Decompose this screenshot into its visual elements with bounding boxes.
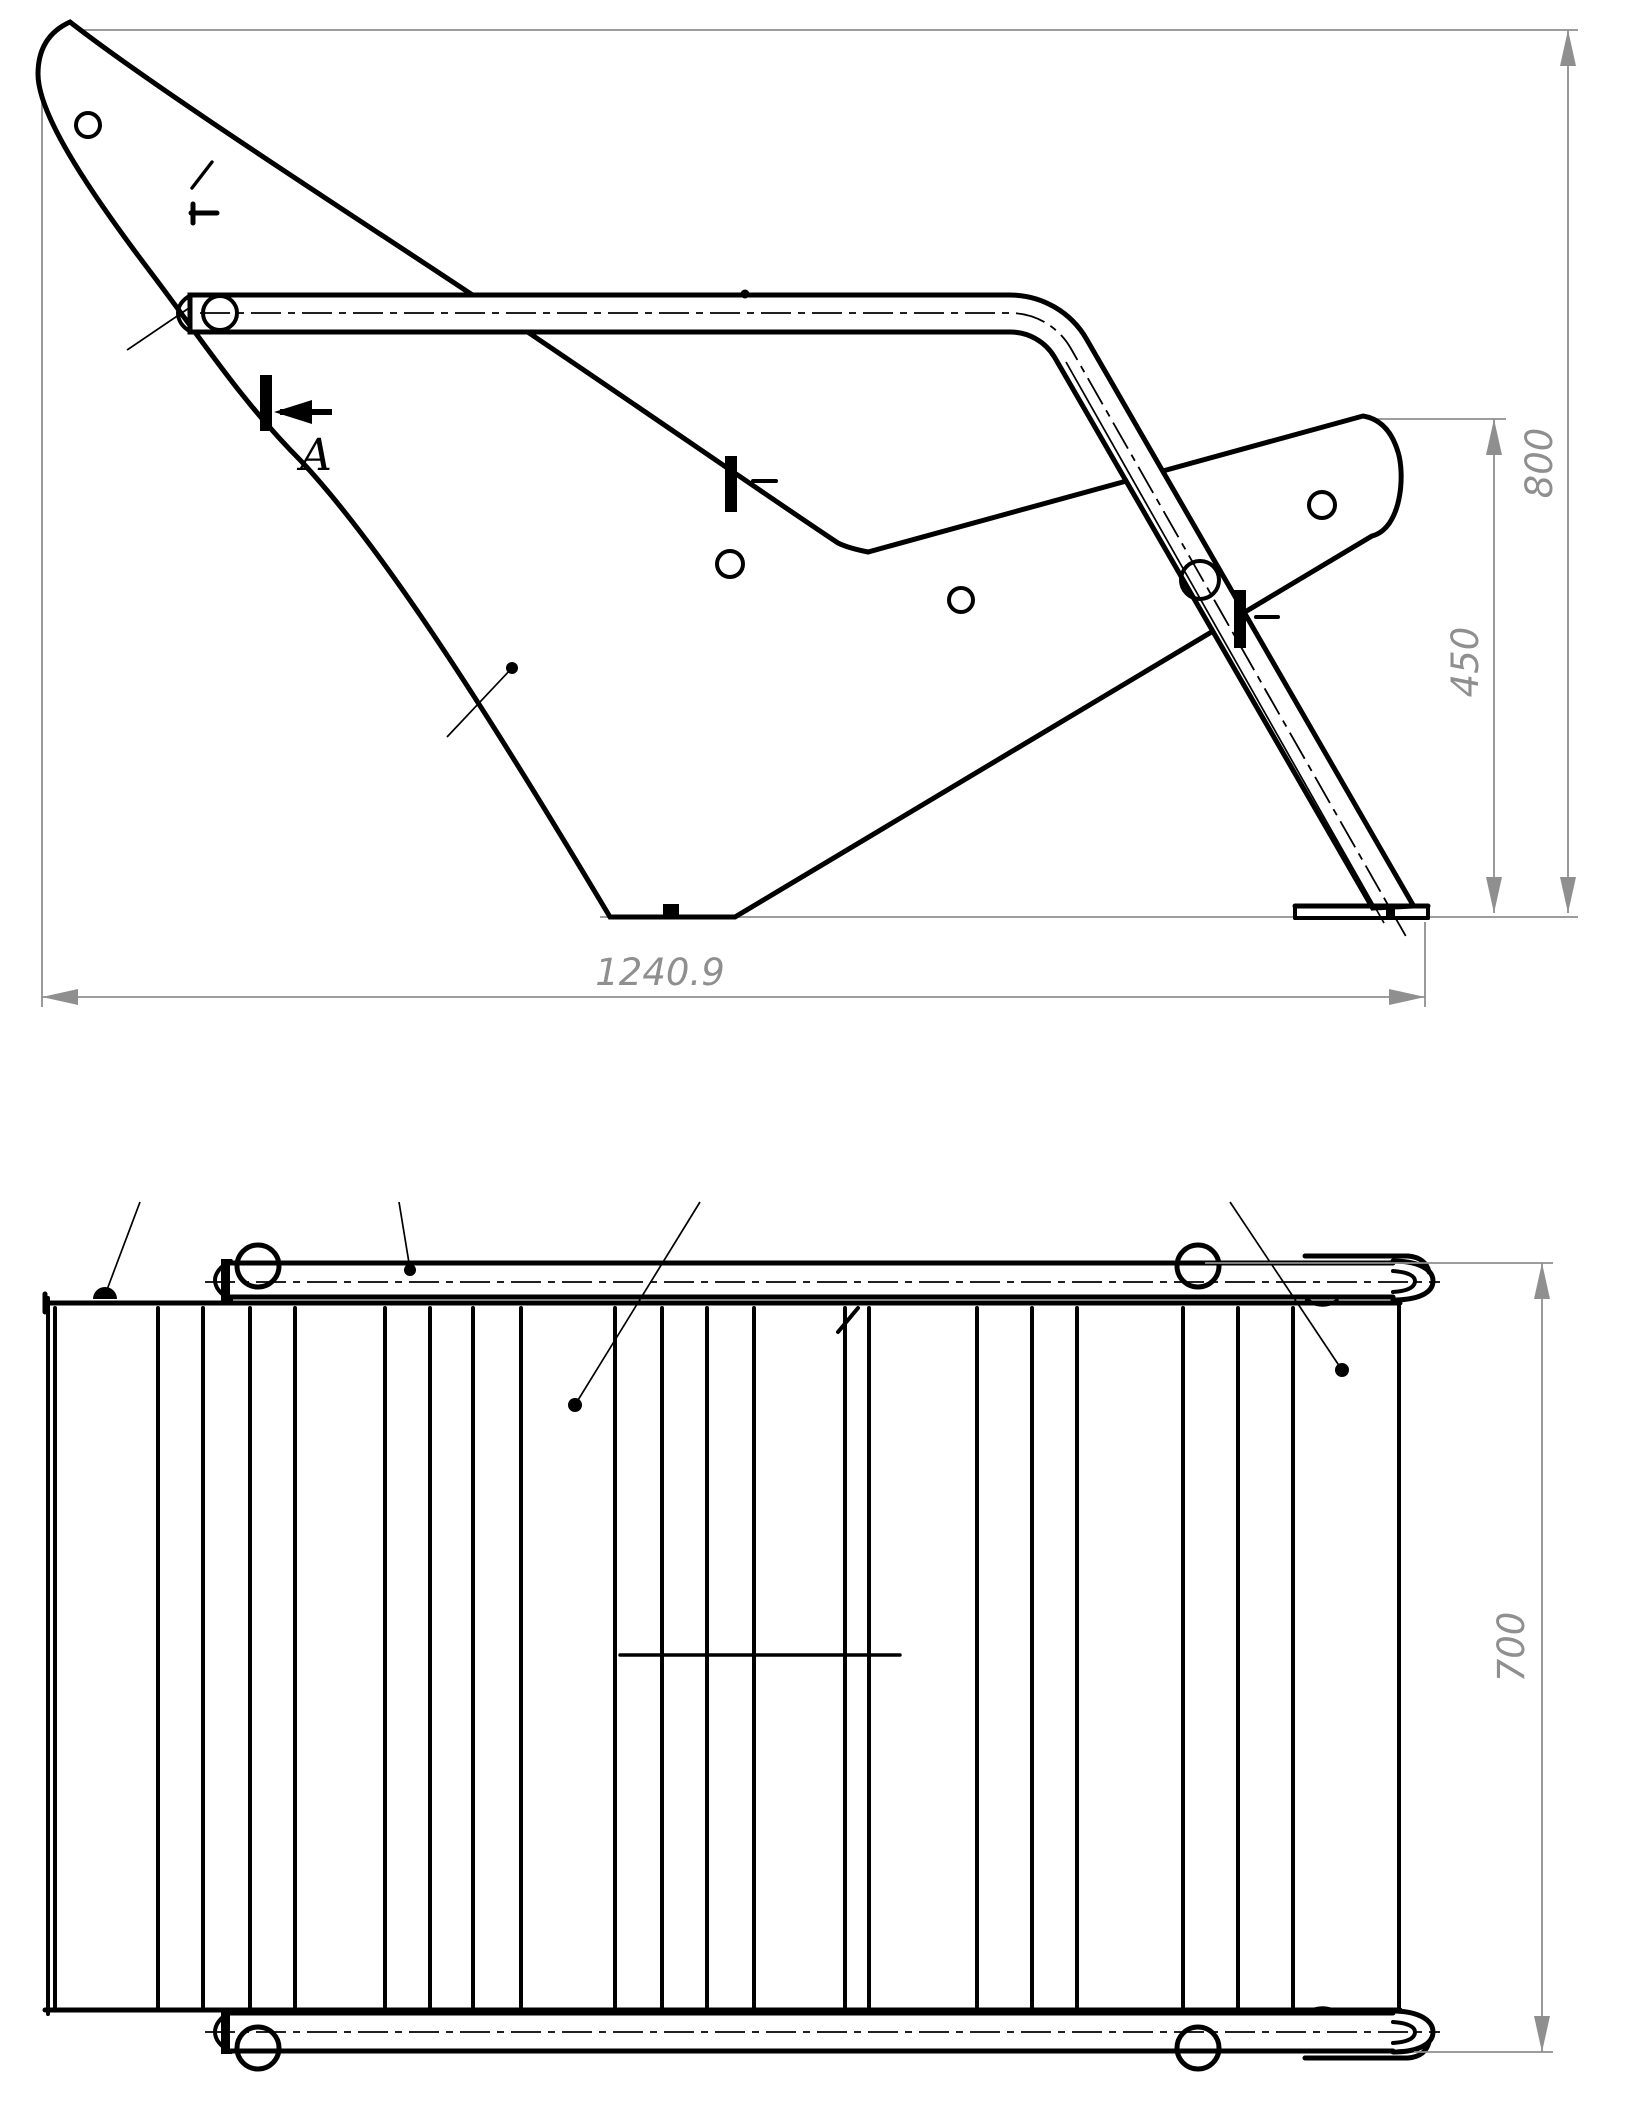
plan-bottom-tube xyxy=(205,2008,1440,2069)
dim-seat-height xyxy=(1486,419,1502,913)
plan-top-tube xyxy=(205,1245,1440,1305)
drawing-sheet: A 1240.9 800 xyxy=(0,0,1629,2105)
bench-frame-drawing: A 1240.9 800 xyxy=(0,0,1629,2105)
dim-overall-length xyxy=(42,989,1425,1005)
dim-text-width: 700 xyxy=(1490,1612,1533,1683)
side-plate-outline xyxy=(38,22,1401,917)
right-foot-plate xyxy=(1295,906,1428,918)
side-view: A 1240.9 800 xyxy=(38,22,1578,1007)
plank-edges xyxy=(55,1308,1293,2009)
plan-view: 700 xyxy=(45,1202,1553,2069)
plan-view-leaders xyxy=(93,1202,1349,1412)
plank-field xyxy=(45,1294,1400,2014)
dim-text-height: 800 xyxy=(1518,428,1561,499)
dim-text-length: 1240.9 xyxy=(595,951,724,994)
dim-overall-height xyxy=(1560,30,1576,913)
dim-text-seat-height: 450 xyxy=(1444,627,1487,698)
left-foot-tab xyxy=(663,904,679,917)
section-label-a: A xyxy=(296,430,332,481)
